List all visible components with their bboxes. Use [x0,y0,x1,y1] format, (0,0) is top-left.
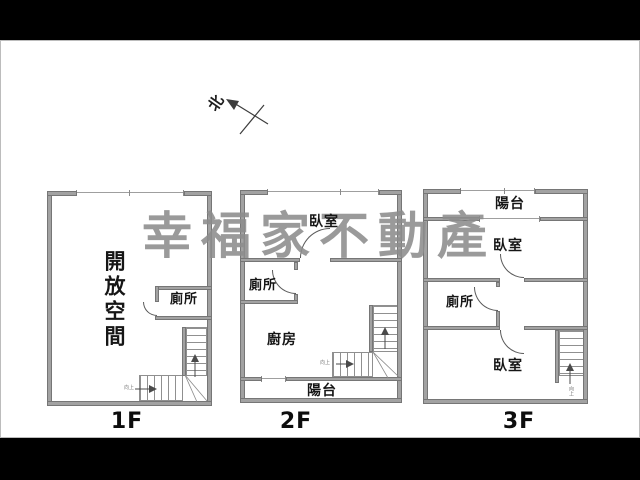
wall-segment [47,191,77,196]
wall-segment [423,399,588,404]
wall-segment [555,330,559,383]
letterbox-top [0,0,640,40]
floor1-label: 1F [82,409,172,434]
window-line [268,191,379,192]
window-line [77,192,184,193]
floor3-label: 3F [474,409,564,434]
room-label-balcony: 陽台 [298,383,346,399]
wall-segment [540,217,588,221]
wall-segment [184,191,212,196]
wall-segment [423,189,461,194]
letterbox-bottom [0,438,640,480]
room-label-open-space: 開放空間 [86,244,126,356]
room-label-toilet: 廁所 [241,279,285,294]
floorplan-image: 幸福家不動產 開放空間 廁所 向上 1F [0,0,640,480]
window-line [262,378,286,379]
wall-segment [47,401,212,406]
wall-segment [240,377,262,381]
wall-segment [240,300,298,304]
room-label-kitchen: 廚房 [258,332,306,348]
stair-treads [373,305,398,352]
room-label-bedroom: 臥室 [300,214,348,230]
room-label-balcony: 陽台 [486,196,534,212]
window-tick [340,189,341,195]
wall-segment [182,327,186,376]
stair-treads [139,375,183,401]
stairs-up-note: 向上 [320,361,330,366]
window-tick [504,188,505,194]
room-label-toilet: 廁所 [162,293,206,308]
stairs-up-note: 向上 [568,386,573,400]
wall-segment [240,190,268,195]
wall-segment [286,377,402,381]
room-label-bedroom-bottom: 臥室 [484,358,532,374]
wall-segment [379,190,402,195]
wall-segment [583,189,588,404]
stair-treads [332,352,373,377]
wall-segment [47,191,52,406]
wall-segment [535,189,588,194]
window-line [461,190,535,191]
floor2-label: 2F [251,409,341,434]
window-tick [129,190,130,196]
wall-segment [423,278,500,282]
wall-segment [155,286,212,290]
wall-segment [155,316,212,320]
stair-treads [186,327,207,376]
wall-segment [423,326,500,330]
room-label-bedroom-top: 臥室 [484,238,532,254]
stairs-up-note: 向上 [124,386,134,391]
wall-segment [524,278,588,282]
room-label-toilet: 廁所 [436,296,484,311]
wall-segment [369,305,373,352]
wall-segment [155,286,159,302]
stair-treads [559,330,584,376]
